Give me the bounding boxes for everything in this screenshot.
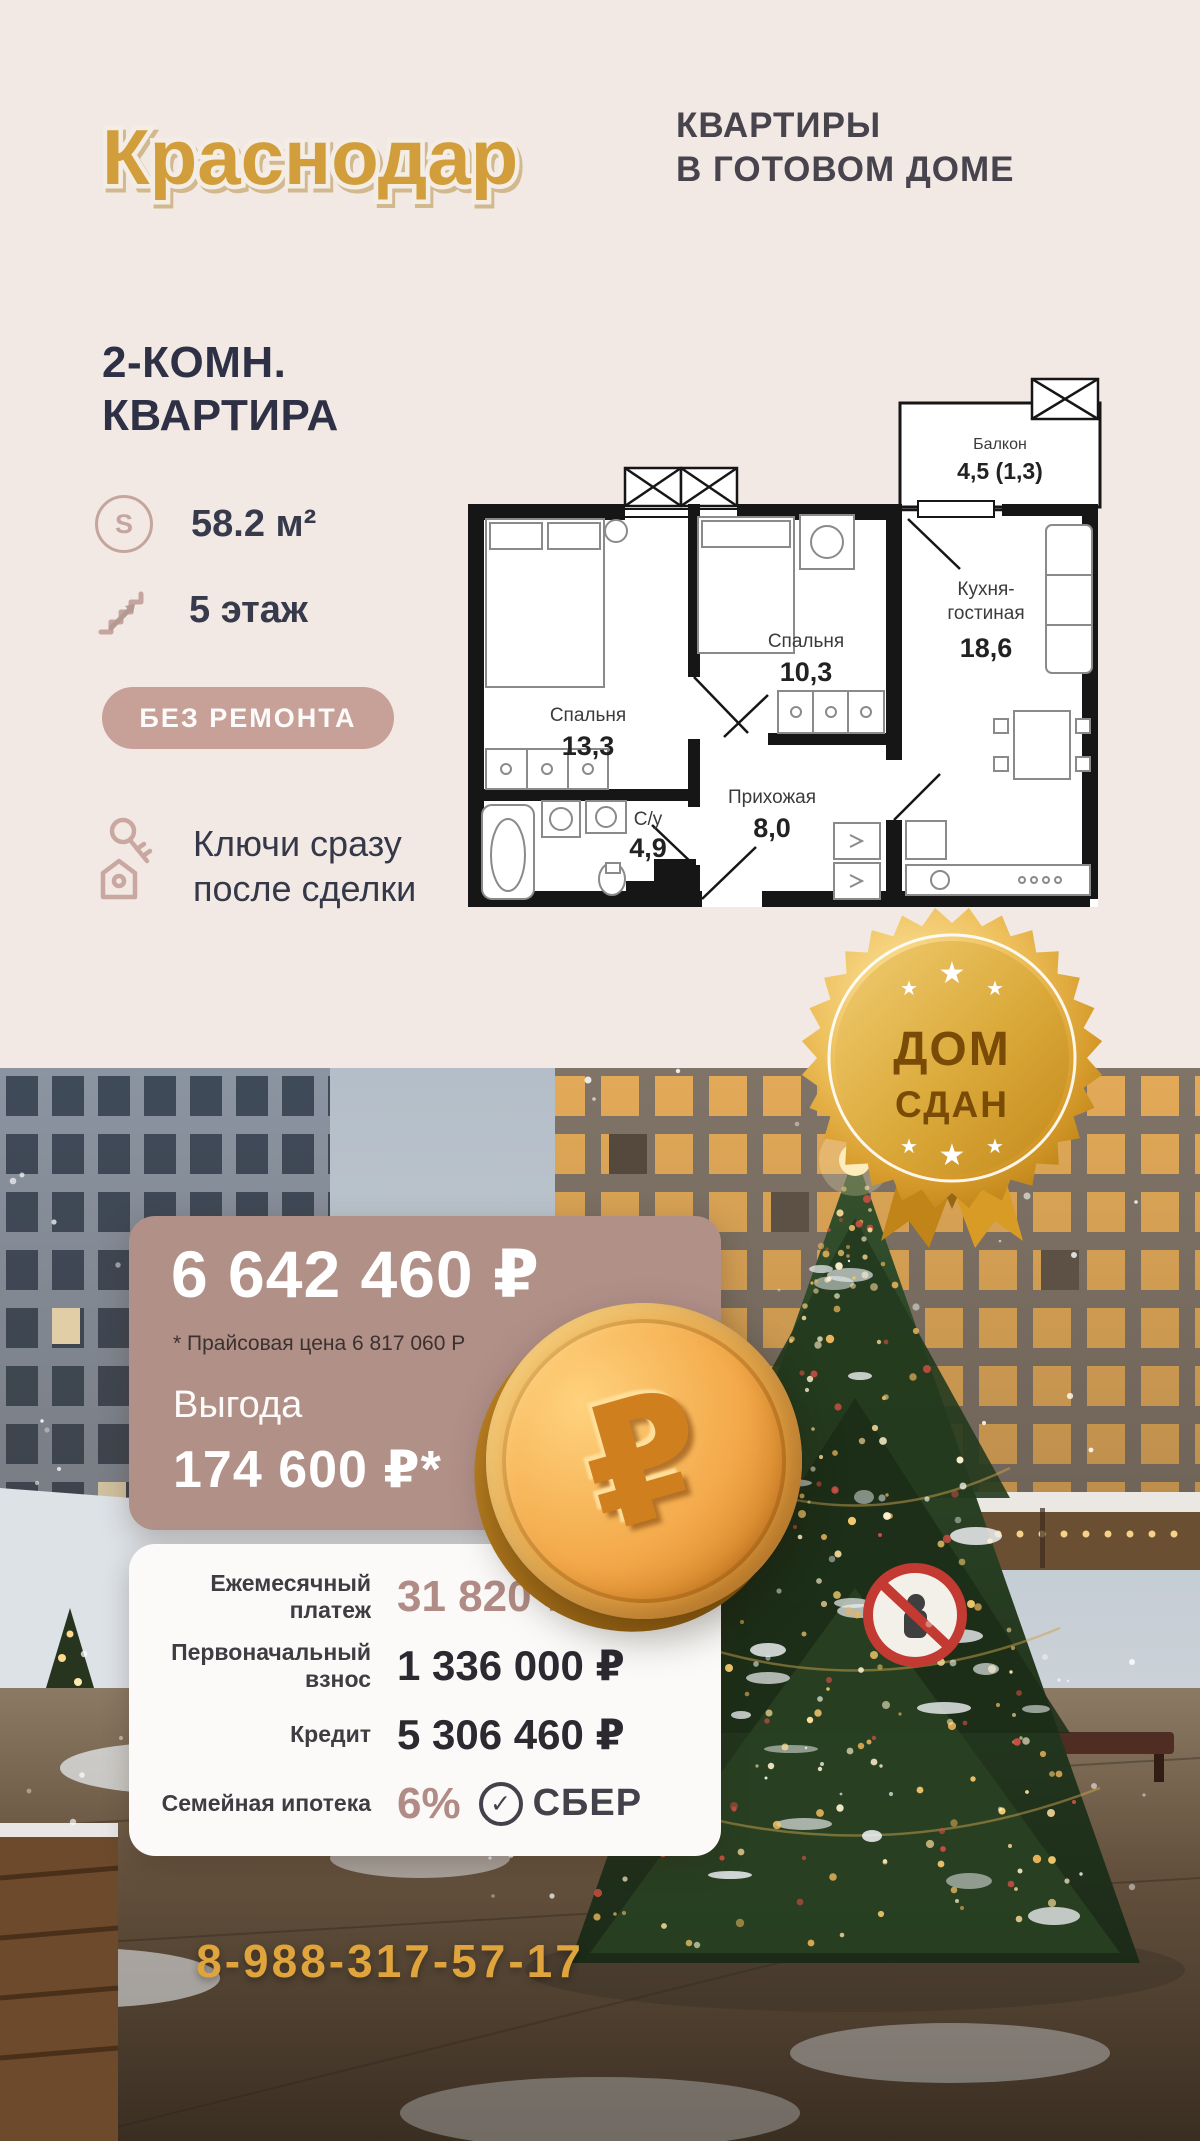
tagline-line2: В ГОТОВОМ ДОМЕ	[676, 148, 1015, 192]
payment-row-credit: Кредит 5 306 460 ₽	[129, 1710, 721, 1759]
dom-sdan-badge: ★ ★ ★ ★ ★ ★ ДОМ СДАН	[797, 903, 1107, 1253]
window-symbols	[625, 468, 737, 517]
payment-row-initial: Первоначальный взнос 1 336 000 ₽	[129, 1639, 721, 1693]
room-kitchen-area: 18,6	[960, 633, 1013, 663]
initial-value: 1 336 000 ₽	[397, 1641, 721, 1690]
floor-value: 5 этаж	[189, 589, 308, 632]
keys-line2: после сделки	[193, 866, 416, 911]
sber-logo: ✓ СБЕР	[479, 1782, 642, 1826]
benefit-label: Выгода	[173, 1384, 302, 1427]
city-logo: Краснодар	[92, 88, 572, 218]
room-hall-area: 8,0	[753, 813, 791, 843]
keys-row: Ключи сразу после сделки	[93, 815, 416, 911]
keys-line1: Ключи сразу	[193, 821, 416, 866]
svg-text:★: ★	[939, 957, 966, 990]
room-kitchen-name1: Кухня-	[957, 579, 1014, 600]
room-hall-name: Прихожая	[728, 787, 816, 808]
credit-label: Кредит	[129, 1721, 371, 1748]
keys-text: Ключи сразу после сделки	[193, 815, 416, 911]
condition-badge: БЕЗ РЕМОНТА	[102, 687, 394, 749]
badge-line2: СДАН	[895, 1084, 1009, 1125]
floor-row: 5 этаж	[95, 582, 308, 638]
listing-title-line1: 2-КОМН.	[102, 336, 339, 389]
svg-text:★: ★	[986, 1136, 1004, 1158]
room-bath-name: С/у	[634, 809, 663, 830]
flyer: Краснодар КВАРТИРЫ В ГОТОВОМ ДОМЕ 2-КОМН…	[0, 0, 1200, 2141]
listing-title-line2: КВАРТИРА	[102, 389, 339, 442]
wooden-planter	[0, 1823, 118, 2141]
room-bedroom1-area: 13,3	[562, 731, 615, 761]
sber-name: СБЕР	[533, 1782, 642, 1825]
credit-value: 5 306 460 ₽	[397, 1710, 721, 1759]
room-bedroom2-area: 10,3	[780, 657, 833, 687]
monthly-label: Ежемесячный платеж	[129, 1570, 371, 1624]
svg-text:★: ★	[939, 1139, 966, 1172]
stairs-icon	[95, 582, 151, 638]
price-list-note: * Прайсовая цена 6 817 060 Р	[173, 1332, 465, 1356]
room-bedroom1-name: Спальня	[550, 705, 626, 726]
flyer-tagline: КВАРТИРЫ В ГОТОВОМ ДОМЕ	[676, 104, 1015, 192]
mortgage-label: Семейная ипотека	[129, 1790, 371, 1817]
svg-text:★: ★	[900, 1136, 918, 1158]
sber-check-icon: ✓	[479, 1782, 523, 1826]
area-row: S 58.2 м²	[95, 495, 316, 553]
room-bath-area: 4,9	[629, 833, 667, 863]
ruble-coin-icon: ₽	[457, 1274, 832, 1649]
keys-icon	[93, 815, 159, 907]
area-icon: S	[95, 495, 153, 553]
area-value: 58.2 м²	[191, 503, 316, 546]
room-bedroom2-name: Спальня	[768, 631, 844, 652]
price-main: 6 642 460 ₽	[171, 1236, 540, 1313]
listing-title: 2-КОМН. КВАРТИРА	[102, 336, 339, 442]
initial-label: Первоначальный взнос	[129, 1639, 371, 1693]
phone-number: 8-988-317-57-17	[140, 1934, 640, 1988]
payment-row-mortgage: Семейная ипотека 6% ✓ СБЕР	[129, 1779, 721, 1829]
badge-line1: ДОМ	[893, 1023, 1011, 1076]
city-name: Краснодар	[102, 113, 518, 201]
coin-ruble-symbol: ₽	[560, 1350, 728, 1573]
prohibition-sign-icon	[868, 1568, 962, 1662]
floor-plan: Балкон 4,5 (1,3) Кухня- гостиная 18,6 Сп…	[462, 367, 1110, 915]
svg-text:★: ★	[986, 978, 1004, 1000]
mortgage-rate: 6%	[397, 1779, 461, 1829]
room-balcony-area: 4,5 (1,3)	[957, 458, 1043, 484]
room-balcony-name: Балкон	[973, 436, 1027, 453]
room-kitchen-name2: гостиная	[947, 603, 1024, 624]
benefit-value: 174 600 ₽*	[173, 1440, 442, 1500]
coin-face: ₽	[457, 1274, 832, 1649]
tagline-line1: КВАРТИРЫ	[676, 104, 1015, 148]
svg-text:★: ★	[900, 978, 918, 1000]
